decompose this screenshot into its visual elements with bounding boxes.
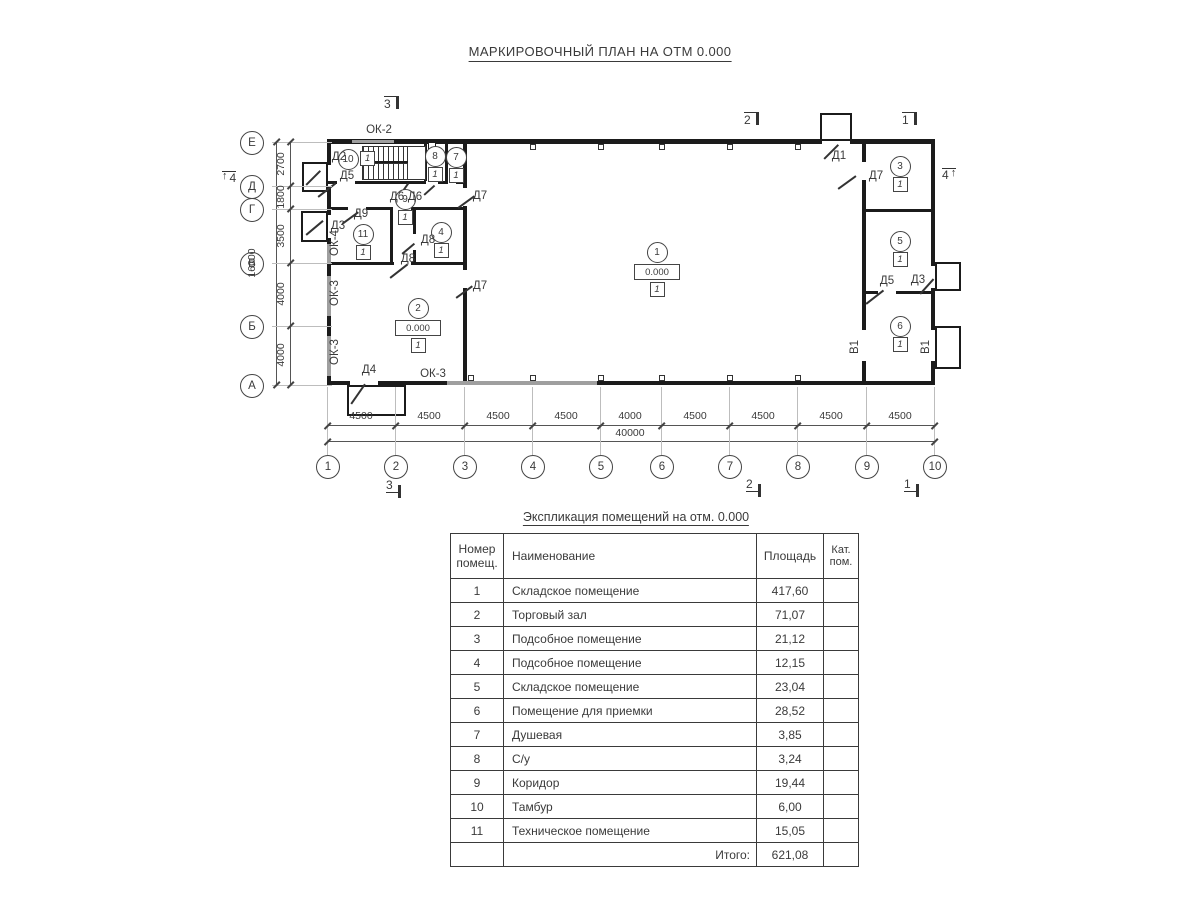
section-mark: 2	[746, 478, 761, 492]
total-label-cell: Итого:	[504, 843, 757, 867]
room-number-bubble: 11	[353, 224, 374, 245]
room-name-cell: Душевая	[504, 723, 757, 747]
schedule-title: Экспликация помещений на отм. 0.000	[523, 510, 749, 526]
section-mark: 4↑	[942, 168, 956, 182]
dimension-line	[327, 441, 935, 442]
door-label: Д7	[869, 170, 883, 182]
dimension-label: 2700	[275, 152, 287, 175]
schedule-row: 7Душевая3,85	[451, 723, 859, 747]
room-category-mark: 1	[428, 167, 443, 182]
plan-title: МАРКИРОВОЧНЫЙ ПЛАН НА ОТМ 0.000	[469, 44, 732, 62]
room-number-cell: 6	[451, 699, 504, 723]
door-label: Д8	[401, 253, 415, 265]
dimension-label: 4500	[417, 410, 440, 422]
axis-extension-line	[395, 387, 396, 455]
dimension-label: 4500	[683, 410, 706, 422]
dimension-label: 4000	[275, 343, 287, 366]
door-label: Д9	[354, 208, 368, 220]
axis-leader-line	[272, 263, 332, 264]
schedule-total-row: Итого:621,08	[451, 843, 859, 867]
room-cat-cell	[824, 603, 859, 627]
elevation-mark: 0.000	[395, 320, 441, 336]
section-mark-number: 1	[904, 478, 911, 490]
section-mark-bar	[916, 484, 919, 497]
room-category-mark: 1	[893, 252, 908, 267]
wall-tick	[795, 375, 801, 381]
window-label: ОК-4	[329, 230, 341, 256]
axis-extension-line	[600, 387, 601, 455]
room-area-cell: 6,00	[757, 795, 824, 819]
room-name-cell: Торговый зал	[504, 603, 757, 627]
section-mark-bar	[398, 485, 401, 498]
axis-number-bubble: 4	[521, 455, 545, 479]
section-arrow-icon: ↑	[222, 170, 228, 185]
door-label: Д5	[880, 275, 894, 287]
section-mark-number: 4	[230, 172, 237, 185]
door-label: Д6	[390, 191, 404, 203]
door-label: Д5	[340, 170, 354, 182]
drawing-sheet: МАРКИРОВОЧНЫЙ ПЛАН НА ОТМ 0.000	[0, 0, 1200, 900]
door-label: В1	[849, 340, 861, 354]
room-category-mark: 1	[893, 337, 908, 352]
dimension-line	[327, 425, 935, 426]
room-number-cell: 3	[451, 627, 504, 651]
wall-segment	[463, 206, 467, 270]
door-leaf-mark	[423, 185, 434, 195]
axis-number-bubble: 7	[718, 455, 742, 479]
room-name-cell: Складское помещение	[504, 675, 757, 699]
schedule-row: 10Тамбур6,00	[451, 795, 859, 819]
room-number-cell: 10	[451, 795, 504, 819]
room-name-cell: Помещение для приемки	[504, 699, 757, 723]
axis-number-bubble: 8	[786, 455, 810, 479]
wall-segment	[366, 207, 392, 210]
axis-letter-bubble: Е	[240, 131, 264, 155]
door-label: Д6	[408, 191, 422, 203]
room-area-cell: 417,60	[757, 579, 824, 603]
room-cat-cell	[824, 651, 859, 675]
axis-leader-line	[272, 385, 332, 386]
room-category-mark: 1	[434, 243, 449, 258]
room-category-mark: 1	[360, 151, 375, 166]
room-number-bubble: 8	[425, 146, 446, 167]
dimension-label: 4500	[349, 410, 372, 422]
room-area-cell: 21,12	[757, 627, 824, 651]
room-name-cell: Тамбур	[504, 795, 757, 819]
schedule-header-cell: Наименование	[504, 534, 757, 579]
porch-outline	[302, 162, 328, 192]
room-number-bubble: 5	[890, 231, 911, 252]
door-leaf-mark	[390, 264, 408, 279]
axis-letter-bubble: Д	[240, 175, 264, 199]
section-mark-bar	[758, 484, 761, 497]
axis-number-bubble: 9	[855, 455, 879, 479]
axis-number-bubble: 5	[589, 455, 613, 479]
porch-outline	[935, 262, 961, 291]
window-label: ОК-2	[366, 124, 392, 136]
door-label: Д8	[421, 234, 435, 246]
section-mark: 3	[386, 479, 401, 493]
axis-extension-line	[327, 387, 328, 455]
room-number-cell: 4	[451, 651, 504, 675]
axis-extension-line	[866, 387, 867, 455]
room-area-cell: 23,04	[757, 675, 824, 699]
wall-tick	[727, 375, 733, 381]
section-mark: 1	[902, 112, 917, 126]
window-label: ОК-3	[329, 339, 341, 365]
porch-outline	[820, 113, 852, 141]
door-label: Д2	[332, 151, 346, 163]
room-category-mark: 1	[398, 210, 413, 225]
wall-segment	[862, 209, 931, 212]
schedule-header-cell: Площадь	[757, 534, 824, 579]
wall-segment	[447, 381, 597, 385]
axis-letter-bubble: Б	[240, 315, 264, 339]
stair-landing	[407, 146, 426, 180]
dimension-label: 3500	[275, 224, 287, 247]
room-cat-cell	[824, 699, 859, 723]
porch-outline	[935, 326, 961, 369]
door-leaf-mark	[838, 175, 857, 189]
dimension-label: 4500	[554, 410, 577, 422]
dimension-total-label: 40000	[615, 427, 644, 439]
schedule-row: 5Складское помещение23,04	[451, 675, 859, 699]
wall-segment	[411, 262, 467, 265]
wall-segment	[896, 291, 935, 294]
room-number-bubble: 3	[890, 156, 911, 177]
room-cat-cell	[824, 579, 859, 603]
door-label: В1	[920, 340, 932, 354]
wall-segment	[390, 207, 393, 264]
schedule-header-cell: Номер помещ.	[451, 534, 504, 579]
dimension-label: 4000	[618, 410, 641, 422]
room-area-cell: 3,85	[757, 723, 824, 747]
axis-leader-line	[272, 209, 332, 210]
axis-extension-line	[729, 387, 730, 455]
section-mark-number: 2	[744, 114, 751, 126]
schedule-row: 11Техническое помещение15,05	[451, 819, 859, 843]
dimension-label: 4500	[751, 410, 774, 422]
room-number-bubble: 1	[647, 242, 668, 263]
room-area-cell: 71,07	[757, 603, 824, 627]
axis-number-bubble: 3	[453, 455, 477, 479]
axis-number-bubble: 6	[650, 455, 674, 479]
dimension-label: 4500	[819, 410, 842, 422]
wall-segment	[931, 139, 935, 266]
dimension-total-label: 16000	[246, 248, 258, 277]
dimension-label: 4500	[486, 410, 509, 422]
room-area-cell: 12,15	[757, 651, 824, 675]
room-area-cell: 15,05	[757, 819, 824, 843]
axis-leader-line	[272, 326, 332, 327]
room-name-cell: Коридор	[504, 771, 757, 795]
schedule-row: 2Торговый зал71,07	[451, 603, 859, 627]
section-mark-number: 3	[386, 479, 393, 491]
room-number-cell: 8	[451, 747, 504, 771]
room-number-bubble: 6	[890, 316, 911, 337]
room-cat-cell	[824, 723, 859, 747]
door-label: Д1	[832, 150, 846, 162]
room-name-cell: С/у	[504, 747, 757, 771]
wall-segment	[327, 139, 822, 144]
room-cat-cell	[824, 795, 859, 819]
axis-number-bubble: 1	[316, 455, 340, 479]
wall-tick	[598, 144, 604, 150]
room-number-cell: 5	[451, 675, 504, 699]
room-number-cell: 9	[451, 771, 504, 795]
schedule-row: 9Коридор19,44	[451, 771, 859, 795]
axis-extension-line	[532, 387, 533, 455]
room-name-cell: Подсобное помещение	[504, 651, 757, 675]
section-mark: 3	[384, 96, 399, 110]
room-number-cell: 11	[451, 819, 504, 843]
door-label: Д3	[911, 274, 925, 286]
schedule-header-cell: Кат. пом.	[824, 534, 859, 579]
wall-tick	[530, 375, 536, 381]
section-mark-number: 4	[942, 169, 949, 182]
room-area-cell: 19,44	[757, 771, 824, 795]
room-category-mark: 1	[650, 282, 665, 297]
wall-tick	[659, 144, 665, 150]
room-cat-cell	[824, 771, 859, 795]
section-mark-bar	[396, 96, 399, 109]
room-area-cell: 3,24	[757, 747, 824, 771]
door-label: Д4	[362, 364, 376, 376]
wall-tick	[659, 375, 665, 381]
wall-segment	[463, 288, 467, 385]
room-cat-cell	[824, 675, 859, 699]
window-label: ОК-3	[329, 280, 341, 306]
axis-letter-bubble: А	[240, 374, 264, 398]
door-label: Д7	[473, 190, 487, 202]
schedule-header-row: Номер помещ.НаименованиеПлощадьКат. пом.	[451, 534, 859, 579]
room-number-bubble: 7	[446, 147, 467, 168]
dimension-label: 1800	[275, 185, 287, 208]
wall-tick	[727, 144, 733, 150]
room-name-cell: Техническое помещение	[504, 819, 757, 843]
axis-leader-line	[272, 142, 332, 143]
axis-extension-line	[661, 387, 662, 455]
total-value-cell: 621,08	[757, 843, 824, 867]
axis-number-bubble: 10	[923, 455, 947, 479]
wall-tick	[468, 375, 474, 381]
wall-segment	[862, 361, 866, 385]
room-number-cell: 2	[451, 603, 504, 627]
axis-number-bubble: 2	[384, 455, 408, 479]
section-mark-bar	[756, 112, 759, 125]
axis-letter-bubble: Г	[240, 198, 264, 222]
axis-extension-line	[797, 387, 798, 455]
room-category-mark: 1	[893, 177, 908, 192]
wall-tick	[795, 144, 801, 150]
wall-segment	[862, 180, 866, 330]
section-mark: 1	[904, 478, 919, 492]
wall-segment	[413, 207, 416, 234]
axis-extension-line	[934, 387, 935, 455]
window-label: ОК-3	[420, 368, 446, 380]
room-cat-cell	[824, 747, 859, 771]
room-category-mark: 1	[449, 168, 464, 183]
room-cat-cell	[824, 819, 859, 843]
axis-extension-line	[464, 387, 465, 455]
empty-cell	[451, 843, 504, 867]
elevation-mark: 0.000	[634, 264, 680, 280]
schedule-row: 6Помещение для приемки28,52	[451, 699, 859, 723]
wall-segment	[931, 288, 935, 330]
room-cat-cell	[824, 627, 859, 651]
schedule-row: 8С/у3,24	[451, 747, 859, 771]
room-name-cell: Подсобное помещение	[504, 627, 757, 651]
schedule-row: 3Подсобное помещение21,12	[451, 627, 859, 651]
room-category-mark: 1	[356, 245, 371, 260]
section-arrow-icon: ↑	[951, 167, 957, 182]
dimension-label: 4000	[275, 282, 287, 305]
wall-segment	[327, 262, 394, 265]
wall-segment	[355, 181, 426, 184]
section-mark-number: 2	[746, 478, 753, 490]
schedule-row: 4Подсобное помещение12,15	[451, 651, 859, 675]
wall-segment	[862, 139, 866, 162]
schedule-row: 1Складское помещение417,60	[451, 579, 859, 603]
room-number-cell: 7	[451, 723, 504, 747]
room-name-cell: Складское помещение	[504, 579, 757, 603]
empty-cell	[824, 843, 859, 867]
wall-segment	[352, 140, 394, 143]
room-schedule-table: Номер помещ.НаименованиеПлощадьКат. пом.…	[450, 533, 859, 867]
door-label: Д7	[473, 280, 487, 292]
wall-tick	[530, 144, 536, 150]
wall-tick	[598, 375, 604, 381]
room-category-mark: 1	[411, 338, 426, 353]
section-mark-bar	[914, 112, 917, 125]
section-mark-number: 1	[902, 114, 909, 126]
section-mark: ↑4	[222, 171, 236, 185]
section-mark-number: 3	[384, 98, 391, 110]
room-area-cell: 28,52	[757, 699, 824, 723]
room-number-cell: 1	[451, 579, 504, 603]
room-number-bubble: 2	[408, 298, 429, 319]
section-mark: 2	[744, 112, 759, 126]
dimension-label: 4500	[888, 410, 911, 422]
